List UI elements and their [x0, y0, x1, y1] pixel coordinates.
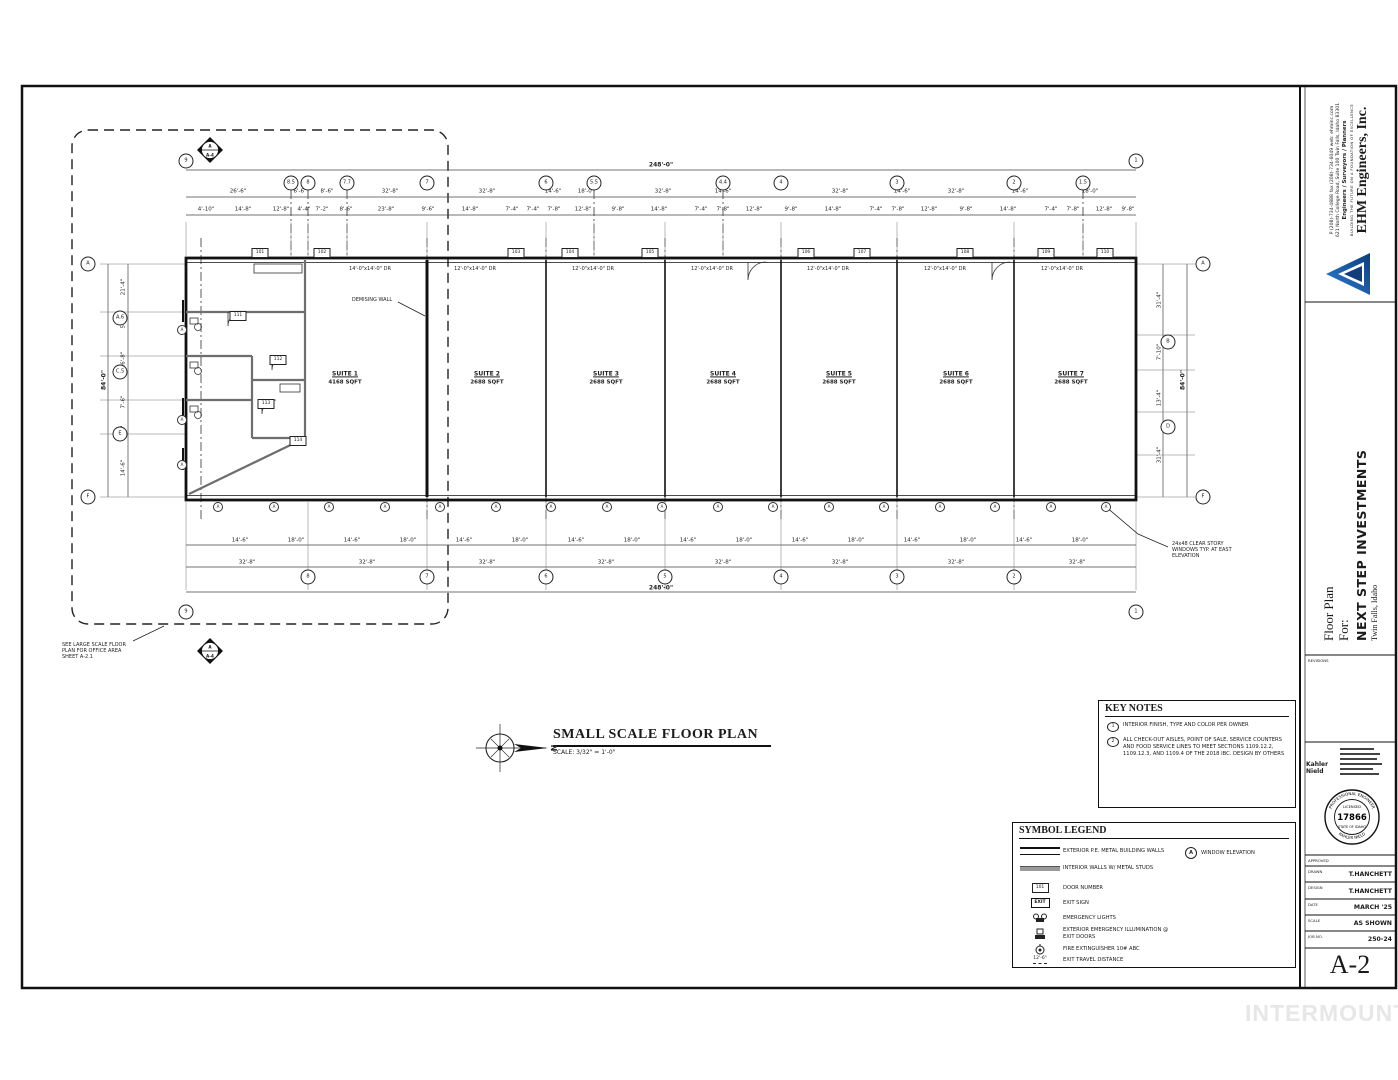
- grid-bubble: D: [1161, 420, 1176, 435]
- plan-text: 32'-8": [832, 560, 849, 567]
- plan-text: A: [208, 143, 211, 148]
- door-tag: 101: [252, 248, 269, 258]
- door-tag: 102: [314, 248, 331, 258]
- plan-text: 32'-8": [655, 189, 672, 196]
- plan-text: 18'-0": [960, 538, 977, 545]
- legend-row: INTERIOR WALLS W/ METAL STUDS: [1017, 865, 1178, 872]
- fine-print: [1340, 753, 1380, 755]
- drawing-title: SMALL SCALE FLOOR PLAN: [553, 727, 771, 747]
- plan-text: 14'-8": [1000, 207, 1017, 214]
- plan-text: 14'-6": [232, 538, 249, 545]
- plan-text: 14'-8": [651, 207, 668, 214]
- symbol-legend-title: SYMBOL LEGEND: [1019, 825, 1289, 839]
- plan-text: 7'-8": [547, 207, 560, 214]
- plan-text: 14'-6": [456, 538, 473, 545]
- grid-bubble: 8: [301, 570, 316, 585]
- plan-text: 7'-4": [526, 207, 539, 214]
- plan-text: 13'-4": [1157, 390, 1164, 407]
- drawn-value: T.HANCHETT: [1349, 871, 1392, 878]
- date-label: DATE: [1308, 902, 1318, 907]
- firm-address: 621 North College Road, Suite 100 Twin F…: [1336, 88, 1341, 252]
- svg-text:LICENSED: LICENSED: [1343, 805, 1361, 809]
- legend-row: 101 DOOR NUMBER: [1017, 883, 1178, 893]
- exterior-wall-symbol: [1017, 847, 1063, 855]
- window-elevation-tag: A: [713, 502, 723, 512]
- plan-text: 18'-0": [512, 538, 529, 545]
- window-elevation-tag: A: [935, 502, 945, 512]
- window-elevation-tag: A: [324, 502, 334, 512]
- interior-wall-symbol: [1017, 866, 1063, 871]
- plan-text: 14'-6": [568, 538, 585, 545]
- svg-text:17866: 17866: [1337, 813, 1367, 823]
- window-elevation-tag: A: [213, 502, 223, 512]
- legend-row: EMERGENCY LIGHTS: [1017, 913, 1178, 923]
- plan-text: 18'-0": [400, 538, 417, 545]
- project-name: NEXT STEP INVESTMENTS: [1354, 302, 1369, 641]
- window-elevation-tag: A: [269, 502, 279, 512]
- plan-text: SUITE 3: [593, 370, 619, 377]
- legend-row: FIRE EXTINGUISHER 10# ABC: [1017, 943, 1178, 955]
- grid-bubble: 7.7: [340, 176, 355, 191]
- door-tag: 110: [1097, 248, 1114, 258]
- engineer-name: Kahler Nield: [1306, 762, 1338, 775]
- plan-text: 8'-6": [339, 207, 352, 214]
- plan-text: 32'-8": [359, 560, 376, 567]
- grid-bubble: 9: [179, 154, 194, 169]
- office-walls: [186, 260, 305, 494]
- plan-text: 14'-6": [792, 538, 809, 545]
- plan-text: 12'-8": [921, 207, 938, 214]
- plan-text: 32'-8": [239, 560, 256, 567]
- symbol-legend-box: SYMBOL LEGEND EXTERIOR P.E. METAL BUILDI…: [1012, 822, 1296, 968]
- grid-bubble: A.6: [113, 311, 128, 326]
- plan-text: DEMISING WALL: [352, 297, 392, 303]
- design-label: DESIGN: [1308, 885, 1323, 890]
- exit-sign-symbol: EXIT: [1017, 898, 1063, 908]
- fixtures: [190, 264, 302, 419]
- plan-text: 84'-0": [1179, 370, 1186, 390]
- plan-text: 32'-8": [948, 189, 965, 196]
- plan-text: 84'-0": [100, 370, 107, 390]
- grid-bubble: A: [81, 257, 96, 272]
- window-elevation-tag: A: [990, 502, 1000, 512]
- fine-print: [1340, 768, 1373, 770]
- grid-bubble: C.5: [113, 365, 128, 380]
- grid-bubble: 3: [890, 176, 905, 191]
- key-note-text: ALL CHECK-OUT AISLES, POINT OF SALE, SER…: [1123, 737, 1287, 758]
- key-note-number: 2: [1107, 737, 1119, 747]
- plan-text: 2688 SQFT: [706, 380, 739, 387]
- plan-text: 18'-0": [848, 538, 865, 545]
- window-elevation-tag: A: [177, 325, 187, 335]
- firm-services: Engineers / Surveyors / Planners: [1342, 88, 1348, 252]
- exit-travel-distance-symbol: 12'-6": [1017, 956, 1063, 964]
- plan-text: 2688 SQFT: [470, 380, 503, 387]
- grid-bubble: 4.4: [716, 176, 731, 191]
- plan-text: 7'-4": [694, 207, 707, 214]
- plan-text: 7'-4": [505, 207, 518, 214]
- fine-print: [1340, 773, 1379, 775]
- plan-text: SUITE 7: [1058, 370, 1084, 377]
- plan-text: SUITE 6: [943, 370, 969, 377]
- exterior-emergency-light-icon: [1017, 928, 1063, 940]
- plan-text: 7'-8": [716, 207, 729, 214]
- grid-bubble: 6: [539, 570, 554, 585]
- key-note: 1 INTERIOR FINISH, TYPE AND COLOR PER OW…: [1107, 722, 1287, 732]
- fine-print: [1340, 748, 1374, 750]
- door-tag: 104: [562, 248, 579, 258]
- grid-bubble: 1.5: [1076, 176, 1091, 191]
- fine-print: [1340, 758, 1377, 760]
- plan-text: SUITE 1: [332, 370, 358, 377]
- drawn-label: DRAWN: [1308, 869, 1322, 874]
- firm-tagline: BUILDING THE FUTURE ON A FOUNDATION OF E…: [1349, 88, 1354, 252]
- firm-contact: P (208)-734-4888 fax (208)-734-6049 web:…: [1330, 88, 1335, 252]
- plan-text: 9'-8": [959, 207, 972, 214]
- door-tag: 111: [230, 311, 247, 321]
- job-no-label: JOB NO.: [1308, 934, 1323, 939]
- plan-text: 9'-6": [421, 207, 434, 214]
- svg-text:KAHLER NIELD: KAHLER NIELD: [1338, 831, 1366, 840]
- job-no-value: 250-24: [1368, 936, 1392, 943]
- grid-bubble: 5: [658, 570, 673, 585]
- plan-text: 14'-6": [680, 538, 697, 545]
- grid-bubble: 3: [890, 570, 905, 585]
- revisions-label: REVISIONS: [1308, 658, 1329, 663]
- door-tag: 112: [270, 355, 287, 365]
- fire-extinguisher-icon: [1017, 943, 1063, 955]
- plan-text: 14'-8": [235, 207, 252, 214]
- approved-label: APPROVED: [1308, 858, 1329, 863]
- plan-text: 14'-0"x14'-0" DR: [349, 266, 391, 272]
- plan-text: 7'-4": [869, 207, 882, 214]
- grid-bubble: 5.5: [587, 176, 602, 191]
- plan-text: 26'-6": [230, 189, 247, 196]
- key-note: 2 ALL CHECK-OUT AISLES, POINT OF SALE, S…: [1107, 737, 1287, 758]
- plan-text: 2688 SQFT: [589, 380, 622, 387]
- plan-text: SUITE 2: [474, 370, 500, 377]
- door-tag: 114: [290, 436, 307, 446]
- project-title-line2: For:: [1337, 302, 1352, 641]
- plan-text: 14'-6": [344, 538, 361, 545]
- door-tag: 109: [1038, 248, 1055, 258]
- plan-text: 248'-0": [649, 584, 673, 591]
- plan-text: 12'-8": [575, 207, 592, 214]
- svg-text:STATE OF IDAHO: STATE OF IDAHO: [1338, 825, 1366, 829]
- grid-bubble: 7: [420, 570, 435, 585]
- door-tag: 105: [642, 248, 659, 258]
- plan-text: N: [548, 745, 558, 752]
- key-note-number: 1: [1107, 722, 1119, 732]
- key-notes-box: KEY NOTES 1 INTERIOR FINISH, TYPE AND CO…: [1098, 700, 1296, 808]
- plan-text: 12'-0"x14'-0" DR: [454, 266, 496, 272]
- scale-value: AS SHOWN: [1354, 920, 1392, 927]
- firm-title-block: P (208)-734-4888 fax (208)-734-6049 web:…: [1304, 88, 1396, 302]
- north-arrow: [476, 724, 548, 772]
- plan-text: 23'-8": [378, 207, 395, 214]
- demising-walls: [427, 260, 1014, 497]
- plan-text: 4'-10": [198, 207, 215, 214]
- window-elevation-tag: A: [546, 502, 556, 512]
- window-elevation-tag: A: [602, 502, 612, 512]
- door-tag: 103: [508, 248, 525, 258]
- grid-bubble: 1: [1129, 605, 1144, 620]
- plan-text: 32'-8": [715, 560, 732, 567]
- large-scale-reference-boundary: [72, 130, 448, 624]
- plan-text: SUITE 5: [826, 370, 852, 377]
- plan-text: 7'-4": [1044, 207, 1057, 214]
- plan-text: A: [208, 644, 211, 649]
- plan-text: 7'-8": [891, 207, 904, 214]
- key-notes-title: KEY NOTES: [1105, 703, 1289, 717]
- legend-row: EXTERIOR EMERGENCY ILLUMINATION @ EXIT D…: [1017, 927, 1178, 940]
- plan-text: 14'-6": [121, 460, 128, 477]
- door-tag: 107: [854, 248, 871, 258]
- plan-text: 9'-8": [611, 207, 624, 214]
- grid-bubble: 7: [420, 176, 435, 191]
- legend-row: A WINDOW ELEVATION: [1181, 847, 1316, 859]
- window-elevation-tag: A: [879, 502, 889, 512]
- plan-text: 9'-8": [1121, 207, 1134, 214]
- plan-text: 14'-8": [825, 207, 842, 214]
- window-elevation-tag: A: [657, 502, 667, 512]
- grid-bubble: 2: [1007, 570, 1022, 585]
- plan-text: SEE LARGE SCALE FLOOR PLAN FOR OFFICE AR…: [62, 642, 126, 660]
- plan-text: 9'-8": [784, 207, 797, 214]
- plan-text: SUITE 4: [710, 370, 736, 377]
- drawing-sheet: PROFESSIONAL ENGINEER KAHLER NIELD LICEN…: [0, 0, 1398, 1080]
- plan-text: 18'-0": [736, 538, 753, 545]
- sheet-number: A-2: [1304, 950, 1396, 980]
- plan-text: 31'-4": [1157, 292, 1164, 309]
- legend-row: 12'-6" EXIT TRAVEL DISTANCE: [1017, 956, 1178, 964]
- plan-text: 12'-8": [273, 207, 290, 214]
- window-elevation-tag: A: [1046, 502, 1056, 512]
- grid-bubble: 4: [774, 176, 789, 191]
- grid-bubble: F: [81, 490, 96, 505]
- plan-text: 14'-8": [462, 207, 479, 214]
- plan-text: A-4: [206, 152, 214, 157]
- plan-text: 18'-0": [624, 538, 641, 545]
- legend-row: EXIT EXIT SIGN: [1017, 898, 1178, 908]
- window-elevation-tag: A: [1101, 502, 1111, 512]
- plan-text: 12'-0"x14'-0" DR: [807, 266, 849, 272]
- door-swings: [228, 262, 1010, 414]
- door-tag: 113: [258, 399, 275, 409]
- plan-text: 8'-6": [320, 189, 333, 196]
- door-number-symbol: 101: [1017, 883, 1063, 893]
- plan-text: A-4: [206, 653, 214, 658]
- emergency-lights-icon: [1017, 913, 1063, 923]
- window-elevation-tag: A: [768, 502, 778, 512]
- plan-text: 32'-8": [382, 189, 399, 196]
- grid-bubble: B: [1161, 335, 1176, 350]
- plan-text: 12'-0"x14'-0" DR: [691, 266, 733, 272]
- plan-text: 7'-6": [121, 395, 128, 408]
- grid-bubble: E: [113, 427, 128, 442]
- window-elevation-tag: A: [177, 460, 187, 470]
- plan-text: 2688 SQFT: [939, 380, 972, 387]
- legend-row: EXTERIOR P.E. METAL BUILDING WALLS: [1017, 847, 1178, 855]
- key-note-text: INTERIOR FINISH, TYPE AND COLOR PER OWNE…: [1123, 722, 1249, 732]
- plan-text: 12'-0"x14'-0" DR: [572, 266, 614, 272]
- watermark: INTERMOUNTAIN: [1245, 1000, 1398, 1027]
- plan-text: 4168 SQFT: [328, 380, 361, 387]
- pe-stamp: PROFESSIONAL ENGINEER KAHLER NIELD LICEN…: [1325, 790, 1379, 844]
- window-elevation-tag: A: [491, 502, 501, 512]
- plan-text: 32'-8": [479, 560, 496, 567]
- project-title-block: Floor Plan For: NEXT STEP INVESTMENTS Tw…: [1305, 302, 1396, 655]
- plan-text: 18'-0": [288, 538, 305, 545]
- project-location: Twin Falls, Idaho: [1370, 302, 1379, 641]
- plan-text: 12'-8": [1096, 207, 1113, 214]
- fine-print: [1340, 763, 1382, 765]
- firm-logo-icon: [1324, 252, 1376, 296]
- plan-text: 32'-8": [598, 560, 615, 567]
- plan-text: 4'-4": [297, 207, 310, 214]
- plan-text: 12'-0"x14'-0" DR: [1041, 266, 1083, 272]
- plan-text: 12'-0"x14'-0" DR: [924, 266, 966, 272]
- project-title-line1: Floor Plan: [1322, 302, 1337, 641]
- grid-bubble: A: [1196, 257, 1211, 272]
- door-tag: 108: [957, 248, 974, 258]
- grid-bubble: 6: [539, 176, 554, 191]
- plan-text: 14'-6": [1016, 538, 1033, 545]
- window-elevation-tag: A: [177, 415, 187, 425]
- window-elevation-tag: A: [380, 502, 390, 512]
- window-elevation-tag: A: [435, 502, 445, 512]
- plan-text: 32'-8": [1069, 560, 1086, 567]
- grid-bubble: 1: [1129, 154, 1144, 169]
- window-elevation-tag: A: [824, 502, 834, 512]
- plan-text: 7'-8": [1066, 207, 1079, 214]
- plan-text: 2688 SQFT: [1054, 380, 1087, 387]
- grid-bubble: 9: [179, 605, 194, 620]
- plan-text: 2688 SQFT: [822, 380, 855, 387]
- plan-text: 32'-8": [948, 560, 965, 567]
- firm-name: EHM Engineers, Inc.: [1355, 88, 1371, 252]
- grid-bubble: 8: [301, 176, 316, 191]
- scale-label: SCALE: [1308, 918, 1320, 923]
- plan-text: 32'-8": [832, 189, 849, 196]
- plan-text: 32'-8": [479, 189, 496, 196]
- plan-text: 12'-8": [746, 207, 763, 214]
- door-tag: 106: [798, 248, 815, 258]
- window-elevation-symbol: A: [1181, 847, 1201, 859]
- plan-text: 31'-4": [1157, 447, 1164, 464]
- plan-text: 248'-0": [649, 161, 673, 168]
- drawing-scale: SCALE: 3/32" = 1'-0": [553, 749, 615, 756]
- plan-text: 24x48 CLEAR STORY WINDOWS TYP. AT EAST E…: [1172, 541, 1232, 559]
- grid-bubble: 2: [1007, 176, 1022, 191]
- date-value: MARCH '25: [1354, 904, 1392, 911]
- grid-bubble: 8.5: [284, 176, 299, 191]
- grid-bubble: F: [1196, 490, 1211, 505]
- plan-text: 21'-4": [121, 279, 128, 296]
- plan-text: 14'-6": [904, 538, 921, 545]
- design-value: T.HANCHETT: [1349, 888, 1392, 895]
- grid-bubble: 4: [774, 570, 789, 585]
- plan-text: 7'-2": [315, 207, 328, 214]
- plan-text: 18'-0": [1072, 538, 1089, 545]
